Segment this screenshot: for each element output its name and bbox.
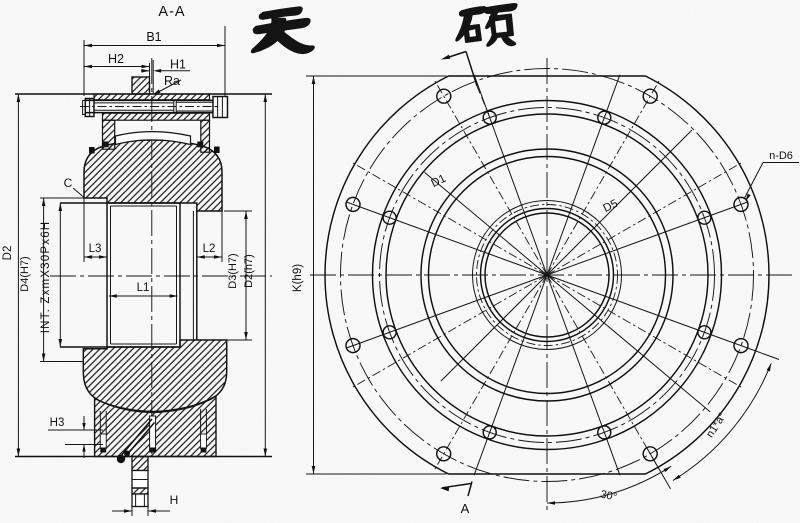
svg-text:K(h9): K(h9) [292,264,304,292]
svg-text:L1: L1 [137,282,150,294]
svg-text:D4(H7): D4(H7) [19,256,31,291]
svg-text:C: C [64,176,73,190]
svg-text:B1: B1 [146,30,161,44]
svg-text:D2: D2 [2,246,14,261]
svg-text:H3: H3 [50,417,65,429]
svg-text:A: A [461,501,470,516]
svg-text:H: H [170,493,179,507]
svg-text:L3: L3 [89,243,102,255]
svg-text:Ra: Ra [164,74,180,88]
svg-text:D2(h7): D2(h7) [243,254,255,288]
svg-text:H2: H2 [108,52,124,66]
svg-text:INT. ZxmX30Px6H: INT. ZxmX30Px6H [40,221,52,334]
svg-text:D3(H7): D3(H7) [227,253,239,288]
svg-text:L2: L2 [203,243,216,255]
svg-text:n-D6: n-D6 [769,150,793,162]
svg-text:H1: H1 [170,58,186,72]
svg-text:A-A: A-A [158,4,185,20]
